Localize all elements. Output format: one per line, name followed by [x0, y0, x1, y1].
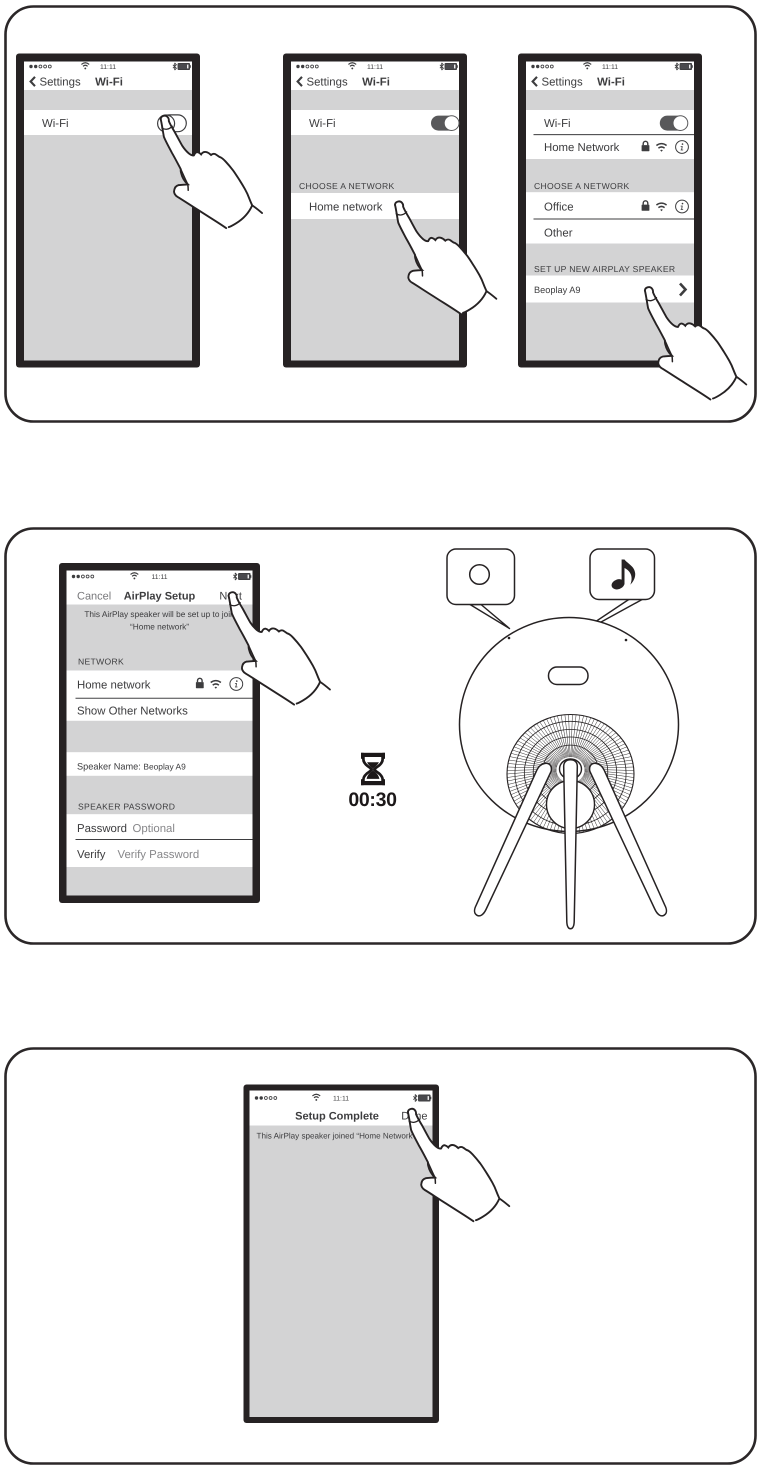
svg-text:Show Other Networks: Show Other Networks: [77, 706, 188, 718]
svg-text:CHOOSE A NETWORK: CHOOSE A NETWORK: [299, 181, 395, 191]
svg-text:Wi-Fi: Wi-Fi: [95, 77, 123, 89]
svg-text:Wi-Fi: Wi-Fi: [544, 118, 571, 130]
svg-text:Verify: Verify: [77, 849, 106, 861]
svg-text:This AirPlay speaker joined “H: This AirPlay speaker joined “Home Networ…: [257, 1132, 416, 1141]
svg-text:NETWORK: NETWORK: [78, 657, 124, 667]
svg-text:Home network: Home network: [77, 680, 151, 692]
svg-text:Password: Password: [77, 823, 127, 835]
svg-text:Home network: Home network: [309, 202, 383, 214]
svg-text:SPEAKER PASSWORD: SPEAKER PASSWORD: [78, 802, 175, 812]
svg-text:Wi-Fi: Wi-Fi: [362, 77, 390, 89]
svg-text:CHOOSE A NETWORK: CHOOSE A NETWORK: [534, 181, 630, 191]
svg-text:Setup Complete: Setup Complete: [295, 1111, 379, 1123]
svg-text:Verify Password: Verify Password: [118, 849, 200, 861]
svg-text:Wi-Fi: Wi-Fi: [42, 118, 69, 130]
svg-text:Home Network: Home Network: [544, 142, 620, 154]
svg-text:11:11: 11:11: [152, 574, 168, 581]
svg-text:Office: Office: [544, 202, 574, 214]
svg-text:Beoplay A9: Beoplay A9: [534, 285, 580, 295]
svg-text:Cancel: Cancel: [77, 591, 111, 603]
svg-text:11:11: 11:11: [602, 64, 618, 71]
svg-text:11:11: 11:11: [100, 64, 116, 71]
svg-text:11:11: 11:11: [333, 1095, 349, 1102]
svg-text:Settings: Settings: [40, 77, 81, 89]
svg-text:00:30: 00:30: [348, 789, 397, 811]
svg-text:Optional: Optional: [133, 823, 175, 835]
svg-text:Wi-Fi: Wi-Fi: [309, 118, 336, 130]
svg-text:Settings: Settings: [307, 77, 348, 89]
svg-text:Speaker Name: Beoplay A9: Speaker Name: Beoplay A9: [77, 762, 186, 772]
svg-text:This AirPlay speaker will be s: This AirPlay speaker will be set up to j…: [84, 609, 235, 619]
svg-text:Settings: Settings: [542, 77, 583, 89]
svg-text:“Home network”: “Home network”: [130, 622, 189, 632]
svg-text:SET UP NEW AIRPLAY SPEAKER: SET UP NEW AIRPLAY SPEAKER: [534, 264, 675, 274]
svg-text:AirPlay Setup: AirPlay Setup: [124, 591, 196, 603]
svg-text:Other: Other: [544, 228, 573, 240]
svg-text:Wi-Fi: Wi-Fi: [597, 77, 625, 89]
svg-text:11:11: 11:11: [367, 64, 383, 71]
